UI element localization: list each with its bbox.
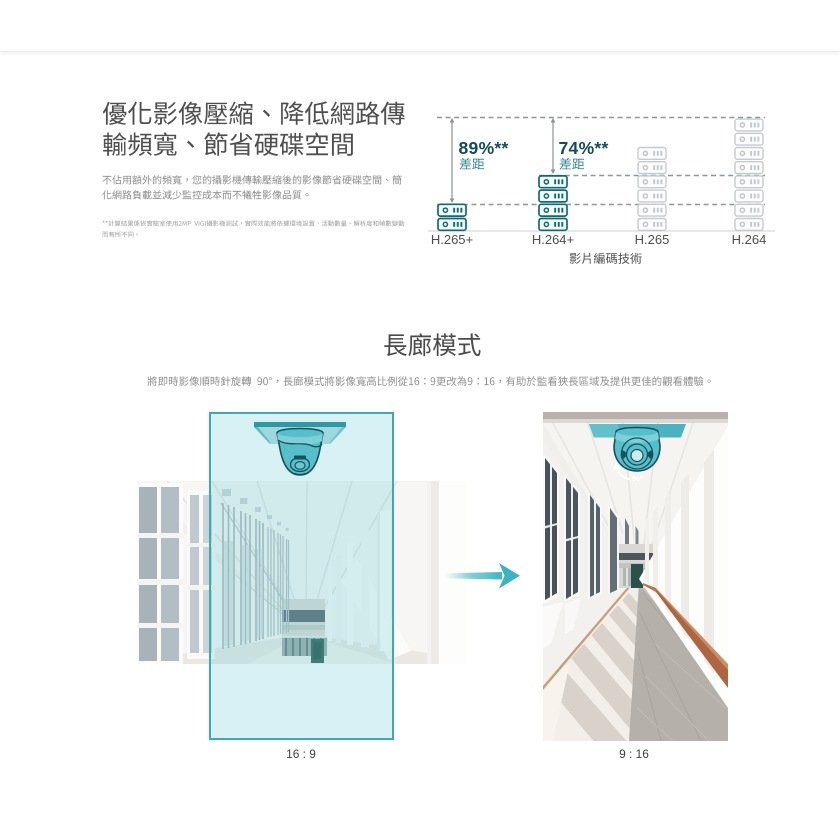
svg-text:90°: 90° <box>632 474 643 483</box>
